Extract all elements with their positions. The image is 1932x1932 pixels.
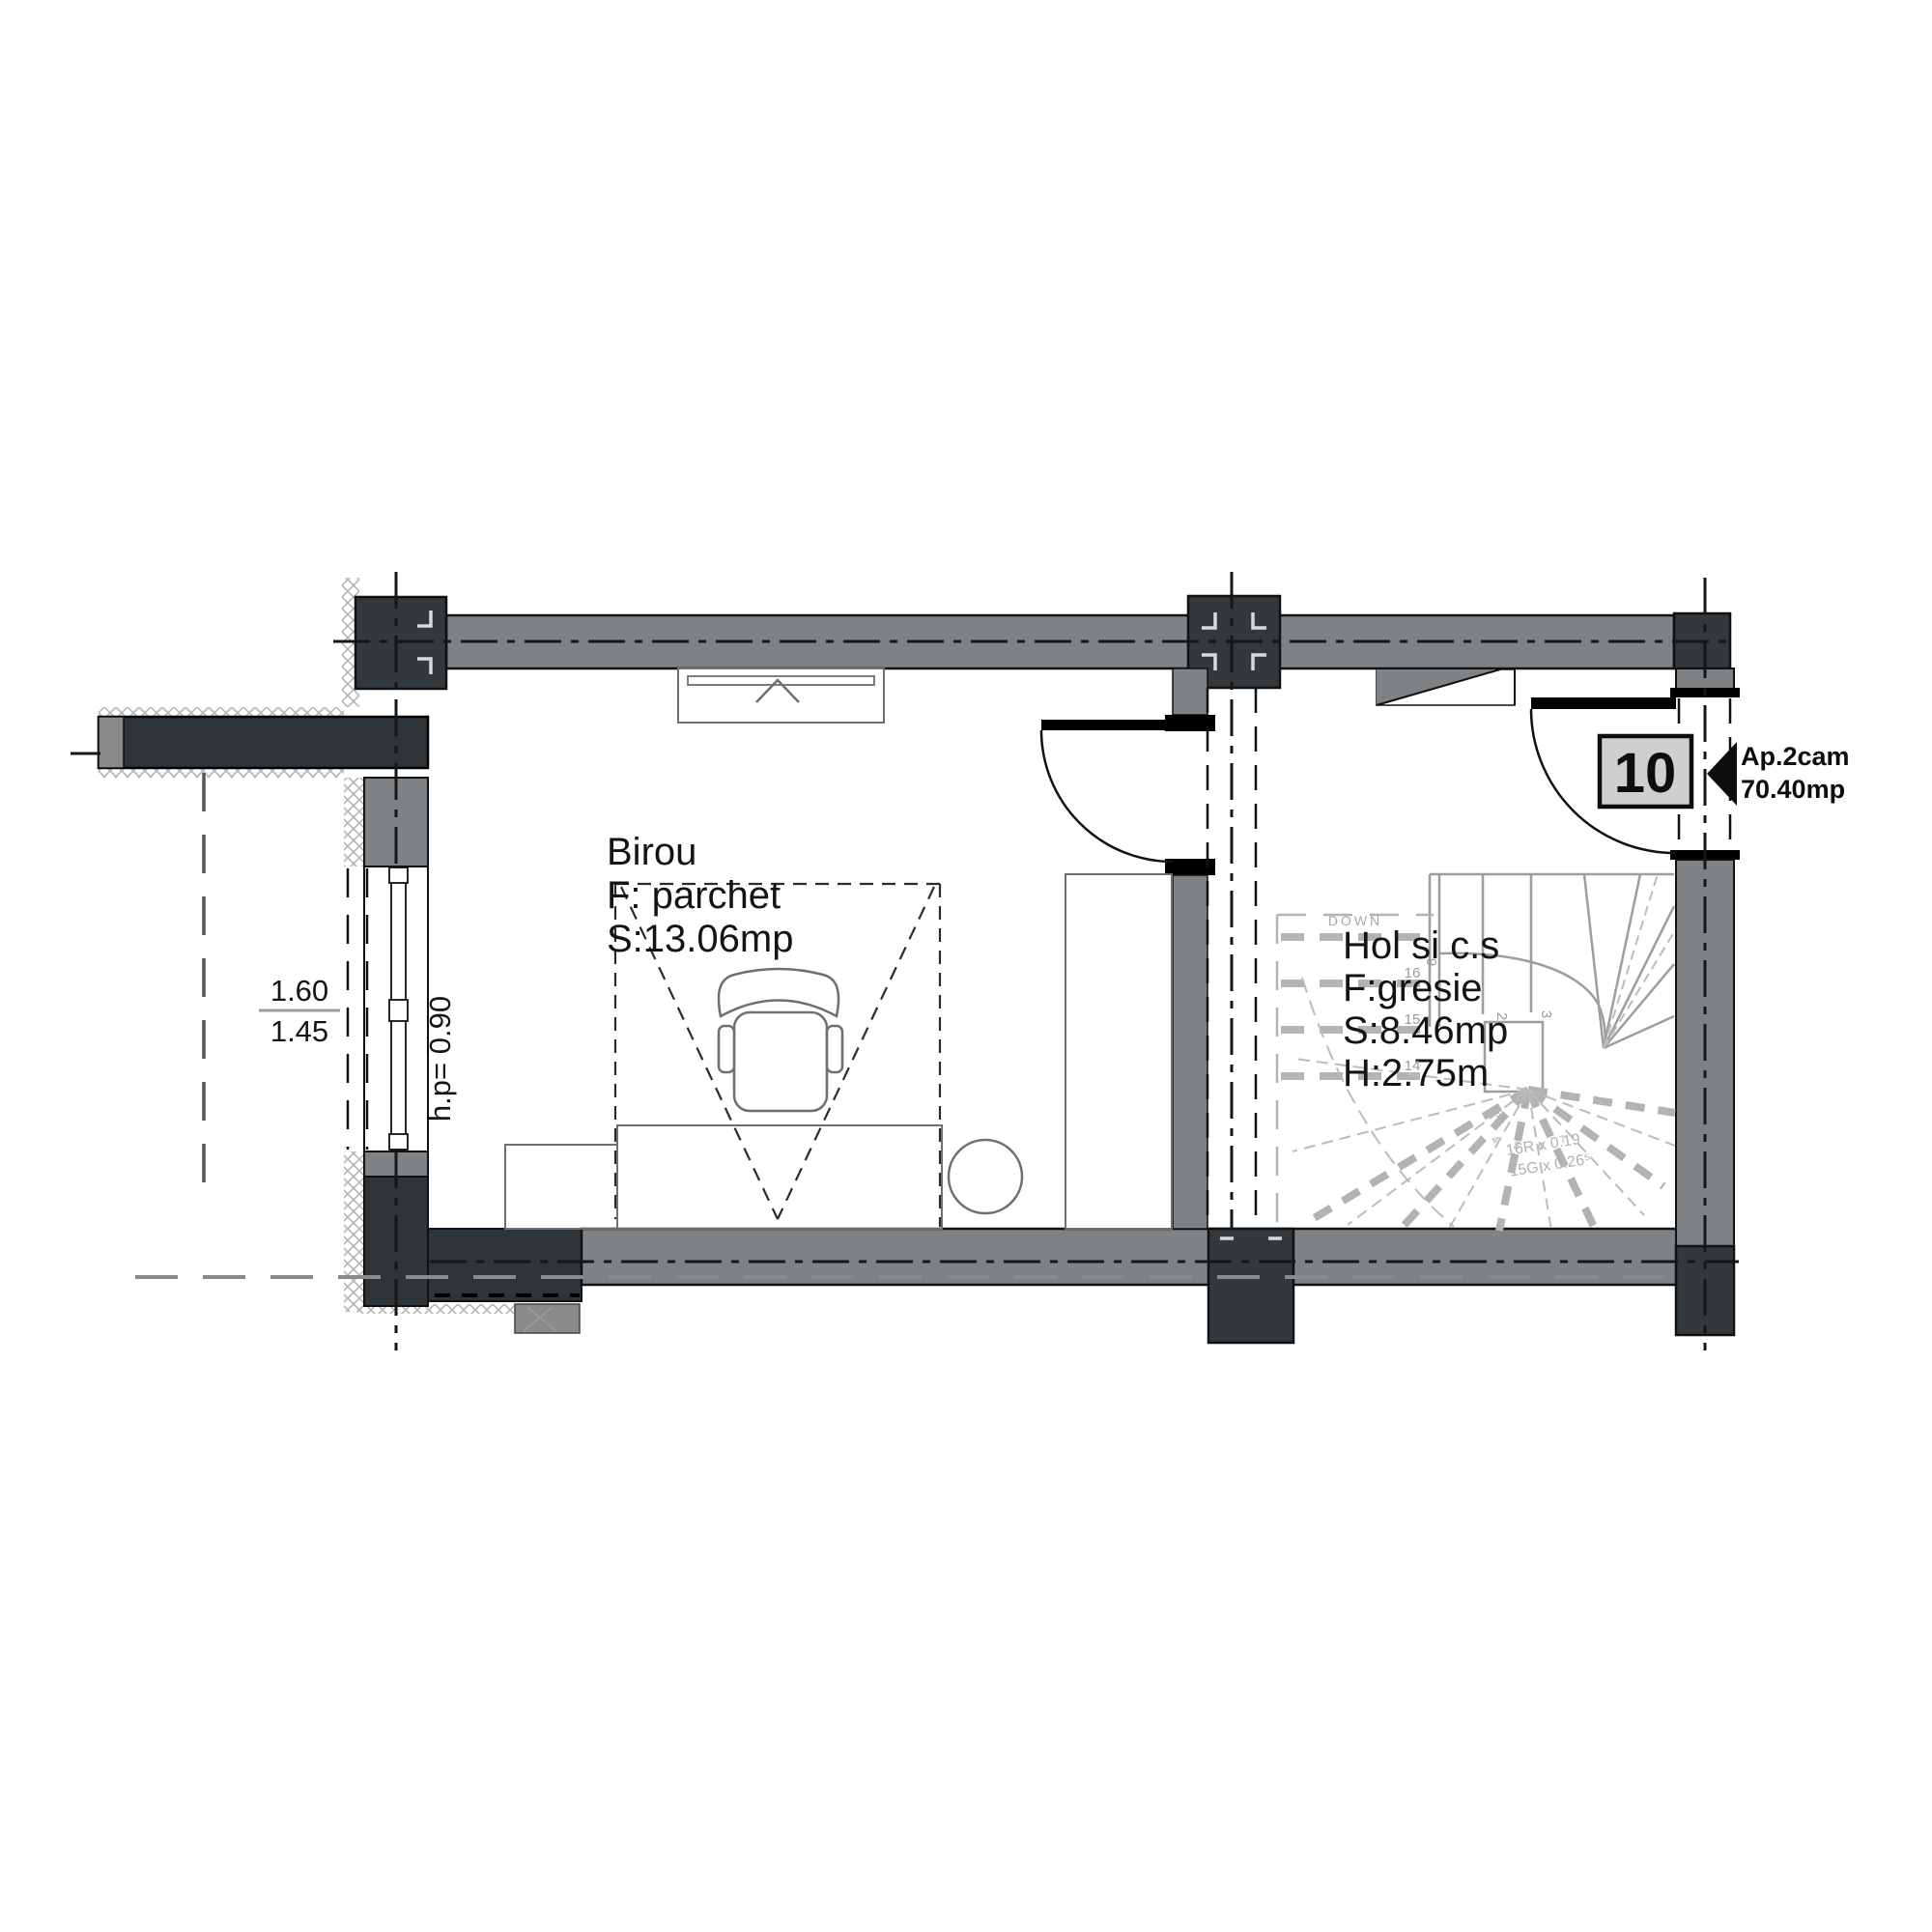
apartment-name: Ap.2cam xyxy=(1741,742,1850,771)
step-2: 2 xyxy=(1493,1012,1510,1020)
chair-armrest-left xyxy=(719,1026,734,1072)
lower-winder-ray-6 xyxy=(1528,1090,1675,1113)
chair-armrest-right xyxy=(827,1026,842,1072)
desk-return xyxy=(505,1145,617,1229)
hatch-left-below-window xyxy=(344,1151,363,1312)
hatch-stub-bottom xyxy=(99,768,344,778)
thin-ray-8 xyxy=(1604,874,1658,1048)
partition-upper-stub xyxy=(1173,668,1207,715)
stool xyxy=(949,1140,1022,1213)
stair-down-label: DOWN xyxy=(1328,913,1382,928)
step-9: 9 xyxy=(1423,958,1439,966)
wall-bottom-dark-segment xyxy=(428,1229,582,1301)
hatch-left-above-window xyxy=(344,778,363,867)
birou-area: S:13.06mp xyxy=(607,918,793,960)
wardrobe xyxy=(1065,874,1172,1229)
lower-winder-ray-1 xyxy=(1306,1090,1528,1223)
entry-arrow-icon xyxy=(1707,742,1737,806)
interior-door-leaf xyxy=(1041,720,1173,730)
birou-floor: F: parchet xyxy=(607,874,781,917)
window-frame-block-top xyxy=(389,867,408,883)
hol-name: Hol si c.s xyxy=(1343,924,1499,967)
window-frame-block-bottom xyxy=(389,1134,408,1150)
wall-bottom-exterior-stub xyxy=(515,1304,580,1333)
entry-door-leaf xyxy=(1531,697,1676,709)
window-dim-bottom: 1.45 xyxy=(270,1014,328,1048)
window-frame-block-mid xyxy=(389,1000,408,1021)
stair-winder-1 xyxy=(1584,874,1604,1048)
window-parapet-height: h.p= 0.90 xyxy=(423,996,457,1122)
hatch-stub-top xyxy=(99,707,344,717)
window-left-wall xyxy=(348,867,428,1151)
step-14: 14 xyxy=(1405,1058,1421,1074)
window-dim-top: 1.60 xyxy=(270,974,328,1008)
thin-ray-9 xyxy=(1604,932,1674,1048)
step-3: 3 xyxy=(1538,1010,1554,1018)
wall-stub-end-cap xyxy=(99,717,124,768)
window-dimension: 1.60 1.45 h.p= 0.90 xyxy=(259,974,457,1122)
floor-plan-canvas: 10 Ap.2cam 70.40mp Birou F: parchet S:13… xyxy=(0,0,1932,1932)
wall-stub-left xyxy=(99,717,428,768)
step-16: 16 xyxy=(1405,965,1421,981)
office-chair xyxy=(719,969,842,1111)
insulation-hatch xyxy=(99,578,517,1314)
chair-backrest xyxy=(719,969,838,1016)
stair-winder-2 xyxy=(1604,874,1640,1048)
column-bottom-center xyxy=(1208,1229,1293,1343)
chair-seat xyxy=(734,1012,827,1111)
door-number: 10 xyxy=(1614,742,1677,805)
birou-furniture xyxy=(505,668,1172,1229)
apartment-area: 70.40mp xyxy=(1741,775,1845,804)
step-15: 15 xyxy=(1405,1011,1421,1028)
interior-door-swing-arc xyxy=(1041,730,1173,862)
hol-area: S:8.46mp xyxy=(1343,1009,1508,1052)
partition-lower xyxy=(1173,875,1207,1229)
birou-name: Birou xyxy=(607,831,696,873)
entry-label: 10 Ap.2cam 70.40mp xyxy=(1600,736,1850,807)
